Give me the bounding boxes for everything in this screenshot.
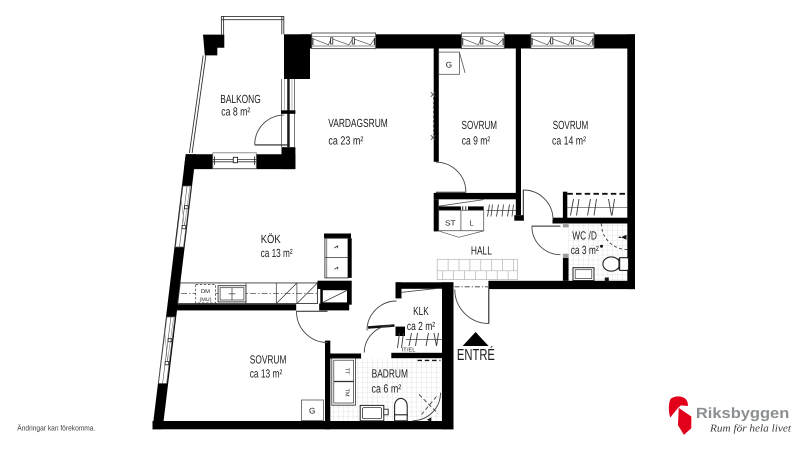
svg-text:ca 13 m²: ca 13 m² xyxy=(250,367,283,381)
svg-text:ca 23 m²: ca 23 m² xyxy=(328,133,363,147)
svg-text:G: G xyxy=(309,407,315,416)
svg-text:WC /D: WC /D xyxy=(572,228,597,242)
svg-text:BADRUM: BADRUM xyxy=(372,367,408,381)
svg-text:ca 14 m²: ca 14 m² xyxy=(552,133,586,147)
svg-text:G: G xyxy=(446,60,452,69)
svg-text:VARDAGSRUM: VARDAGSRUM xyxy=(328,116,388,130)
svg-text:ca 2 m²: ca 2 m² xyxy=(407,319,435,333)
svg-text:SOVRUM: SOVRUM xyxy=(462,118,498,132)
svg-text:Rum för hela livet: Rum för hela livet xyxy=(709,423,792,434)
svg-text:ca 6 m²: ca 6 m² xyxy=(372,382,402,396)
svg-text:L: L xyxy=(470,219,474,228)
svg-text:TT: TT xyxy=(344,368,350,375)
svg-text:(MU): (MU) xyxy=(200,297,212,303)
svg-text:SOVRUM: SOVRUM xyxy=(553,118,589,132)
svg-text:HALL: HALL xyxy=(471,244,492,258)
svg-text:KÖK: KÖK xyxy=(261,232,281,246)
svg-text:ST: ST xyxy=(445,219,456,228)
svg-text:ENTRÉ: ENTRÉ xyxy=(457,346,495,364)
svg-text:ca 9 m²: ca 9 m² xyxy=(462,133,491,147)
svg-text:DM: DM xyxy=(201,289,211,295)
svg-text:ca 3 m²: ca 3 m² xyxy=(571,243,599,257)
svg-text:TM: TM xyxy=(344,388,350,396)
svg-text:IT/EL: IT/EL xyxy=(402,346,416,353)
svg-text:ca 8 m²: ca 8 m² xyxy=(221,104,250,118)
svg-text:SOVRUM: SOVRUM xyxy=(250,352,287,366)
svg-text:KLK: KLK xyxy=(413,304,429,318)
svg-text:Ändringar kan förekomma.: Ändringar kan förekomma. xyxy=(17,424,95,433)
svg-text:Riksbyggen: Riksbyggen xyxy=(696,406,789,422)
svg-text:ca 13 m²: ca 13 m² xyxy=(261,246,293,260)
